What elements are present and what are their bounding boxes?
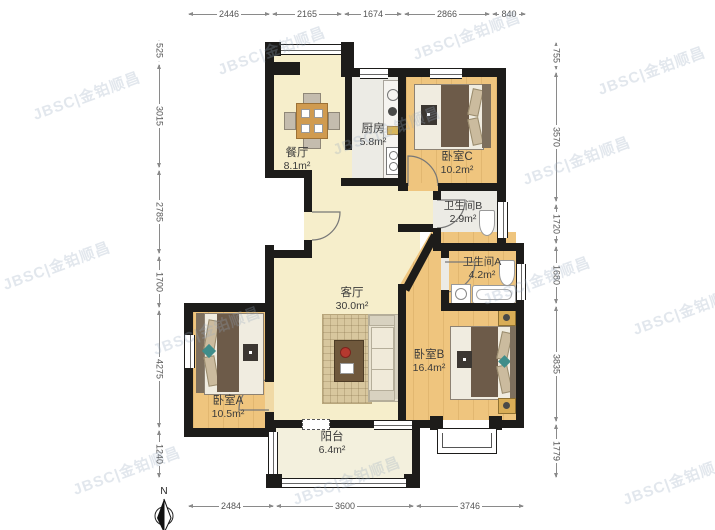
wall	[497, 68, 506, 202]
wall	[274, 62, 300, 75]
wall	[304, 240, 312, 258]
wall	[184, 368, 193, 437]
room-label-bath-b: 卫生间B2.9m²	[434, 200, 492, 226]
compass-needle-icon	[147, 497, 181, 530]
bedroom-c-window	[430, 68, 462, 79]
dim-left-2: 3015	[152, 64, 166, 168]
dim-right-1: 755	[549, 42, 563, 70]
wall	[438, 183, 498, 191]
dim-left-4: 1700	[152, 256, 166, 308]
bedroom-c-headboard	[482, 84, 491, 148]
wall	[398, 183, 408, 191]
wall	[388, 68, 430, 77]
dim-top-4: 2866	[404, 8, 490, 20]
coffee-table	[334, 340, 364, 382]
washing-machine	[451, 284, 471, 304]
balcony-slider-window	[374, 420, 412, 430]
floorplan-canvas: 餐厅8.1m² 厨房5.8m² 卧室C10.2m² 卫生间B2.9m² 卫生间A…	[0, 0, 715, 530]
dim-top-1: 2446	[188, 8, 270, 20]
dim-top-2: 2165	[272, 8, 342, 20]
kitchen-window	[360, 68, 388, 79]
compass-north-label: N	[146, 486, 182, 497]
balcony-left-window	[268, 432, 278, 474]
bedroom-a-headboard	[196, 313, 204, 393]
wall	[184, 428, 276, 437]
bathtub	[472, 285, 516, 304]
room-label-kitchen: 厨房5.8m²	[345, 122, 401, 150]
dim-left-1: 525	[152, 40, 166, 62]
bedroom-b-bay-window	[437, 428, 497, 454]
dim-bottom-1: 2484	[188, 500, 274, 512]
dim-bottom-3: 3746	[416, 500, 524, 512]
wall	[516, 300, 524, 428]
balcony-window	[282, 478, 406, 488]
nightstand	[498, 310, 516, 326]
dining-window	[281, 44, 341, 55]
wall	[398, 224, 433, 232]
kitchen-hob-icon	[388, 107, 397, 116]
room-label-living: 客厅30.0m²	[322, 286, 382, 314]
dim-right-4: 1680	[549, 246, 563, 304]
dining-chair	[328, 112, 340, 130]
dining-chair	[284, 112, 296, 130]
bedroom-a-window	[184, 335, 195, 368]
bedroom-c-bed	[414, 84, 484, 150]
entry-door	[312, 212, 340, 240]
dim-right-6: 1779	[549, 424, 563, 478]
dim-left-6: 1240	[152, 430, 166, 478]
wall	[184, 303, 274, 312]
room-label-bedroom-b: 卧室B16.4m²	[399, 348, 459, 376]
bedroom-b-bed	[450, 326, 514, 400]
dim-left-3: 2785	[152, 170, 166, 254]
dim-bottom-2: 3600	[276, 500, 414, 512]
room-label-bedroom-c: 卧室C10.2m²	[427, 150, 487, 178]
wall	[433, 243, 524, 251]
dim-right-5: 3835	[549, 306, 563, 422]
dim-left-5: 4275	[152, 310, 166, 428]
wall	[265, 303, 274, 382]
room-label-balcony: 阳台6.4m²	[302, 430, 362, 458]
dim-top-3: 1674	[344, 8, 402, 20]
wall	[496, 420, 524, 428]
wall	[404, 474, 420, 488]
dim-right-2: 3570	[549, 72, 563, 202]
wall	[328, 420, 374, 428]
room-label-bath-a: 卫生间A4.2m²	[452, 256, 512, 282]
wall	[441, 303, 524, 311]
compass: N	[146, 486, 182, 530]
balcony-opening-dashed	[302, 419, 330, 430]
wall	[341, 178, 406, 186]
dim-right-3: 1720	[549, 204, 563, 244]
dim-top-5: 840	[492, 8, 526, 20]
wall	[304, 176, 312, 212]
room-label-bedroom-a: 卧室A10.5m²	[198, 394, 258, 422]
wall	[433, 191, 441, 200]
bath-b-window	[497, 202, 508, 238]
nightstand	[498, 398, 516, 414]
bath-a-window	[516, 264, 526, 300]
wall	[441, 251, 449, 258]
dining-table	[296, 103, 328, 139]
wall	[266, 474, 282, 488]
bedroom-a-bed	[204, 313, 264, 395]
room-label-dining: 餐厅8.1m²	[267, 146, 327, 174]
